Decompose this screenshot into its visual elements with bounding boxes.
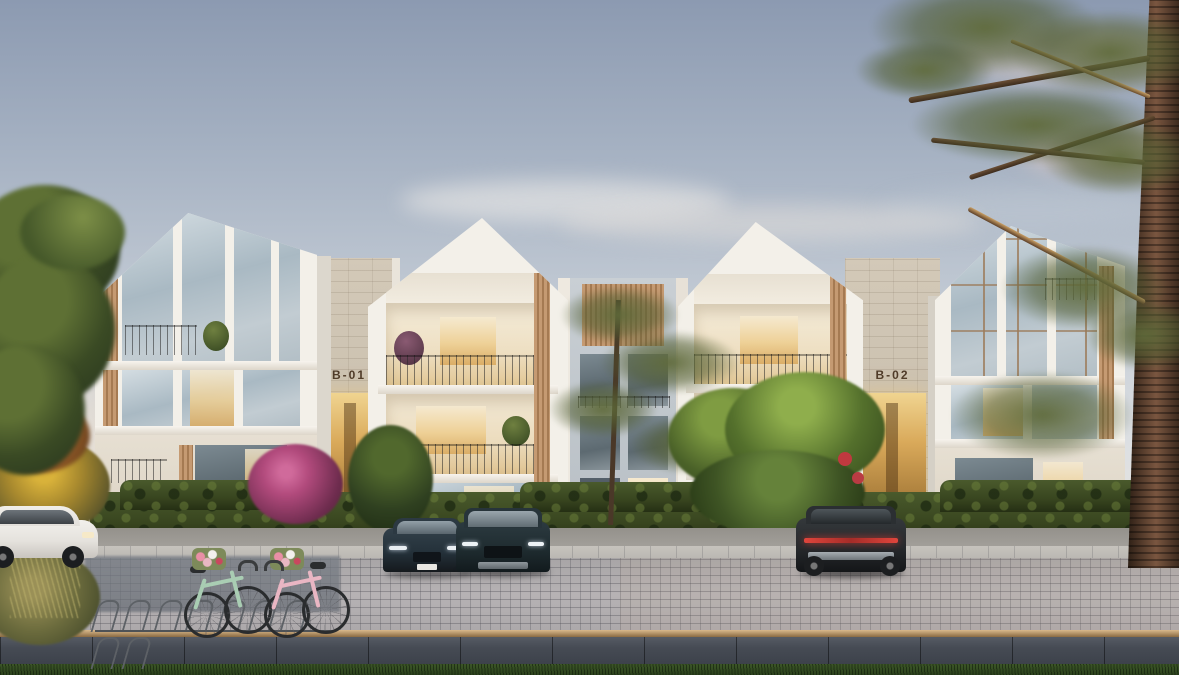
pink-bicycle bbox=[262, 546, 340, 638]
mint-bicycle bbox=[182, 548, 262, 638]
module2-balcony-upper bbox=[386, 303, 550, 385]
floor-slab bbox=[95, 361, 317, 370]
headlight bbox=[528, 542, 544, 546]
module3-gable-wall bbox=[694, 274, 847, 304]
hedgerow-bump bbox=[940, 480, 1140, 512]
left-tree-sunlit-top bbox=[20, 195, 125, 270]
dark-suv-front bbox=[456, 506, 550, 574]
plaza-back-strip bbox=[0, 528, 1179, 548]
car-wheel bbox=[880, 556, 900, 576]
module2-gable-wall bbox=[386, 273, 550, 303]
headlight bbox=[389, 546, 407, 550]
balcony-plant bbox=[203, 321, 229, 351]
architectural-rendering: B-01 B-02 bbox=[0, 0, 1179, 675]
bike-rack-hoop bbox=[90, 600, 121, 632]
red-flower-cluster bbox=[852, 472, 864, 484]
flower-basket bbox=[192, 548, 226, 570]
car-windows bbox=[0, 510, 74, 524]
red-flower-cluster bbox=[838, 452, 852, 466]
bike-wheel bbox=[184, 592, 230, 638]
floor-slab bbox=[95, 426, 317, 435]
handlebar bbox=[238, 560, 258, 571]
balcony-plant bbox=[502, 416, 530, 446]
bike-rack-hoop bbox=[153, 600, 184, 632]
module1-balcony-railing bbox=[125, 325, 197, 355]
pine-needle-cluster-low bbox=[950, 370, 1135, 460]
handlebar bbox=[264, 560, 284, 571]
headlight bbox=[82, 532, 94, 538]
car-grille bbox=[484, 546, 522, 558]
pine-needle-cluster bbox=[855, 40, 995, 100]
rear-window bbox=[811, 509, 891, 524]
dark-suv-rear bbox=[796, 504, 906, 576]
white-hatchback bbox=[0, 502, 98, 568]
stone-sidewalk bbox=[0, 637, 1179, 664]
windshield bbox=[468, 511, 538, 527]
taillight-bar bbox=[804, 538, 898, 543]
balcony-railing bbox=[386, 355, 550, 385]
car-wheel bbox=[62, 546, 84, 568]
bougainvillea-bush bbox=[248, 444, 343, 524]
front-bumper bbox=[478, 562, 528, 569]
grass-verge bbox=[0, 664, 1179, 675]
module1-lit-room bbox=[190, 370, 234, 426]
floor-slab bbox=[378, 385, 558, 394]
window-mullion bbox=[234, 370, 243, 426]
bike-seat bbox=[310, 562, 326, 569]
windshield bbox=[397, 521, 457, 534]
headlight bbox=[462, 542, 478, 546]
bike-wheel bbox=[302, 586, 350, 634]
bike-rack-hoop bbox=[90, 637, 121, 669]
car-wheel bbox=[804, 556, 824, 576]
license-plate bbox=[417, 564, 437, 570]
car-grille bbox=[413, 552, 441, 562]
bike-rack-hoop bbox=[122, 637, 153, 669]
window-mullion bbox=[173, 370, 182, 426]
bike-rack-hoop bbox=[122, 600, 153, 632]
